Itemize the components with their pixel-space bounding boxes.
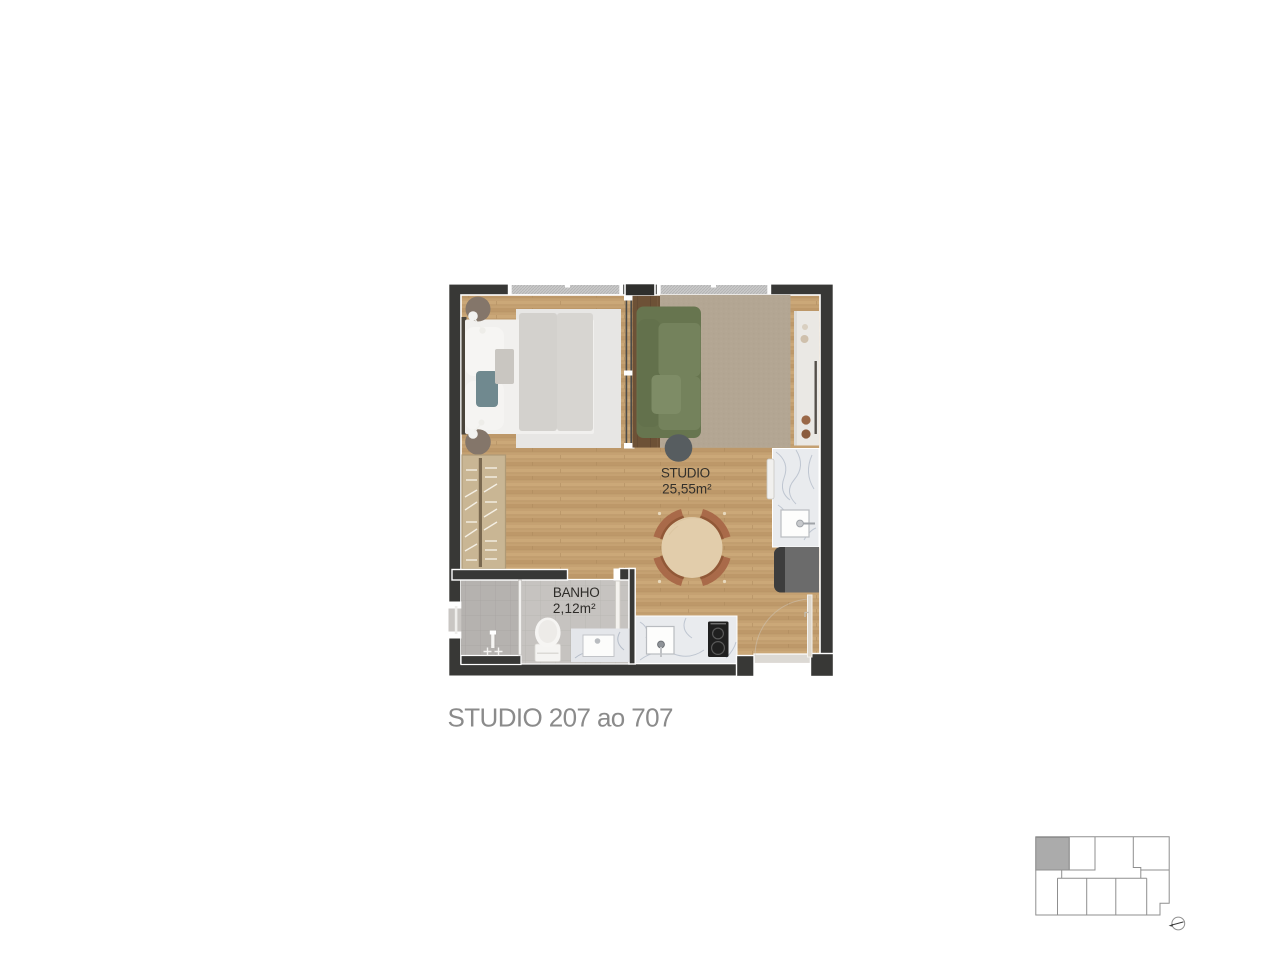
svg-text:STUDIO 207 ao 707: STUDIO 207 ao 707 [448,703,674,733]
svg-text:2,12m²: 2,12m² [553,601,596,616]
svg-text:BANHO: BANHO [553,585,600,600]
svg-text:25,55m²: 25,55m² [662,481,712,496]
svg-text:STUDIO: STUDIO [661,466,710,481]
